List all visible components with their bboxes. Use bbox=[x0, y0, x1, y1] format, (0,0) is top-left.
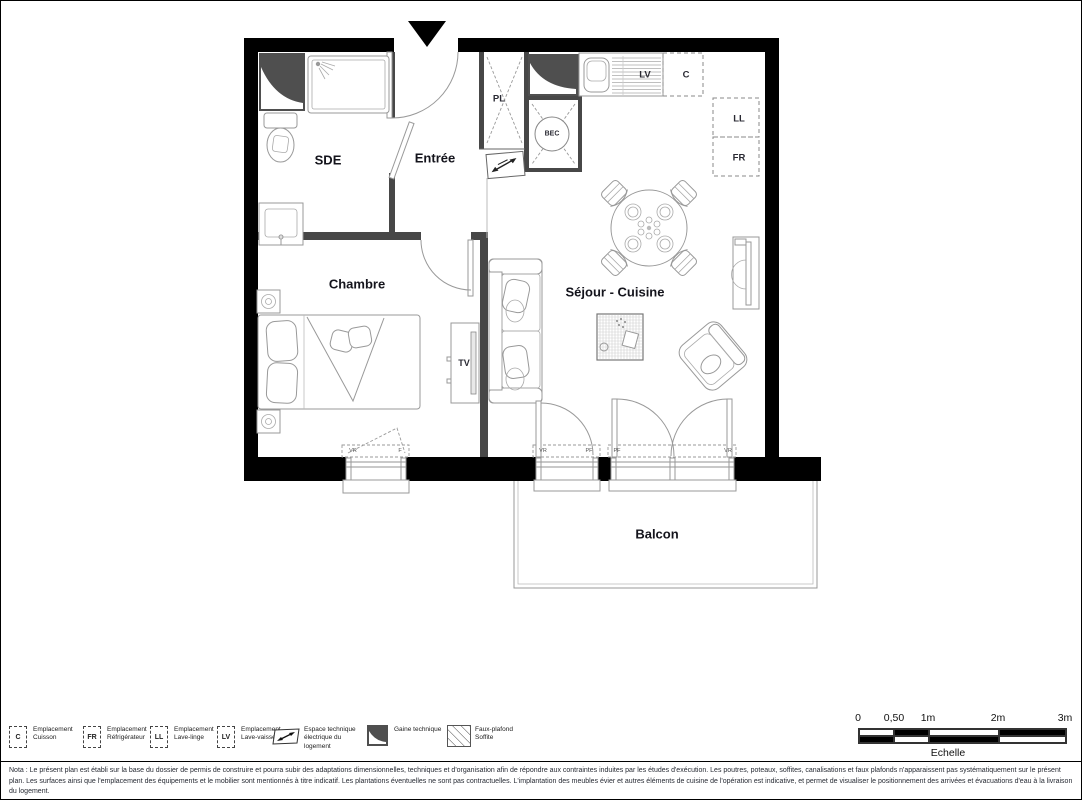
radiator bbox=[732, 237, 760, 309]
sde-door bbox=[389, 122, 414, 179]
faux-plafond-symbol-icon bbox=[447, 725, 471, 747]
fixture-label-lv: LV bbox=[639, 70, 650, 81]
window-tag: VR bbox=[349, 448, 357, 454]
window-tag: VR bbox=[539, 448, 547, 454]
room-label-sde: SDE bbox=[315, 153, 342, 168]
electrical-box-icon bbox=[486, 151, 525, 178]
fixture-label-pl: PL bbox=[493, 94, 505, 105]
window-chambre bbox=[342, 428, 409, 493]
rug bbox=[597, 314, 643, 360]
toilet bbox=[264, 113, 297, 162]
scale-tick: 1m bbox=[921, 712, 936, 724]
duct-kitchen-icon bbox=[528, 54, 579, 96]
scale-tick: 0,50 bbox=[884, 712, 904, 724]
shower bbox=[308, 56, 389, 113]
floor-plan-svg bbox=[1, 1, 1082, 800]
window-sejour-left bbox=[533, 401, 600, 491]
entrance-arrow-icon bbox=[408, 21, 446, 47]
dining-table bbox=[599, 178, 699, 278]
legend-label: Espace technique électrique du logement bbox=[304, 726, 366, 751]
legend-label: Gaine technique bbox=[394, 726, 446, 734]
window-tag: PF bbox=[585, 448, 592, 454]
room-label-sejour-cuisine: Séjour - Cuisine bbox=[566, 285, 665, 300]
refrigerateur-symbol-icon: FR bbox=[83, 726, 101, 748]
chambre-door bbox=[421, 240, 473, 296]
fixture-label-tv: TV bbox=[458, 358, 470, 368]
scale-bar-graphic bbox=[858, 728, 1067, 744]
window-tag: VR bbox=[724, 448, 732, 454]
nightstand-south bbox=[257, 410, 280, 433]
scale-tick: 0 bbox=[855, 712, 861, 724]
entrance-door bbox=[387, 52, 458, 118]
gaine-technique-symbol-icon bbox=[367, 725, 388, 746]
legend-label: Emplacement Lave-linge bbox=[174, 726, 220, 743]
scale-tick: 3m bbox=[1058, 712, 1073, 724]
fixture-label-fr: FR bbox=[733, 153, 746, 164]
lave-vaisselle-symbol-icon: LV bbox=[217, 726, 235, 748]
cuisson-symbol-icon: C bbox=[9, 726, 27, 748]
lave-linge-symbol-icon: LL bbox=[150, 726, 168, 748]
footer-divider bbox=[1, 761, 1082, 762]
window-tag: PF bbox=[613, 448, 620, 454]
duct-sde-icon bbox=[259, 53, 305, 111]
legend-label: Emplacement Cuisson bbox=[33, 726, 83, 743]
centerpiece-icon bbox=[638, 217, 660, 239]
room-label-balcon: Balcon bbox=[635, 527, 678, 542]
fixture-label-ll: LL bbox=[733, 114, 745, 125]
legend-label: Faux-plafond Soffite bbox=[475, 726, 527, 743]
sofa bbox=[489, 259, 542, 403]
window-tag: F bbox=[398, 448, 401, 454]
room-label-chambre: Chambre bbox=[329, 277, 385, 292]
room-label-entree: Entrée bbox=[415, 151, 455, 166]
washbasin bbox=[259, 203, 303, 245]
legend-label: Emplacement Réfrigérateur bbox=[107, 726, 155, 743]
scale-tick: 2m bbox=[991, 712, 1006, 724]
scale-label: Echelle bbox=[931, 747, 965, 759]
fixture-label-bec: BEC bbox=[545, 131, 560, 138]
fixture-label-c: C bbox=[683, 70, 690, 81]
nota-text: Nota : Le présent plan est établi sur la… bbox=[9, 766, 1073, 798]
sheet: SDE Entrée Chambre Séjour - Cuisine Balc… bbox=[0, 0, 1082, 800]
espace-technique-symbol-icon bbox=[272, 728, 300, 746]
window-sejour-right bbox=[608, 399, 736, 491]
armchair bbox=[675, 318, 751, 394]
legend: C Emplacement Cuisson FR Emplacement Réf… bbox=[1, 720, 561, 766]
bed bbox=[258, 315, 420, 409]
nightstand-north bbox=[257, 290, 280, 313]
